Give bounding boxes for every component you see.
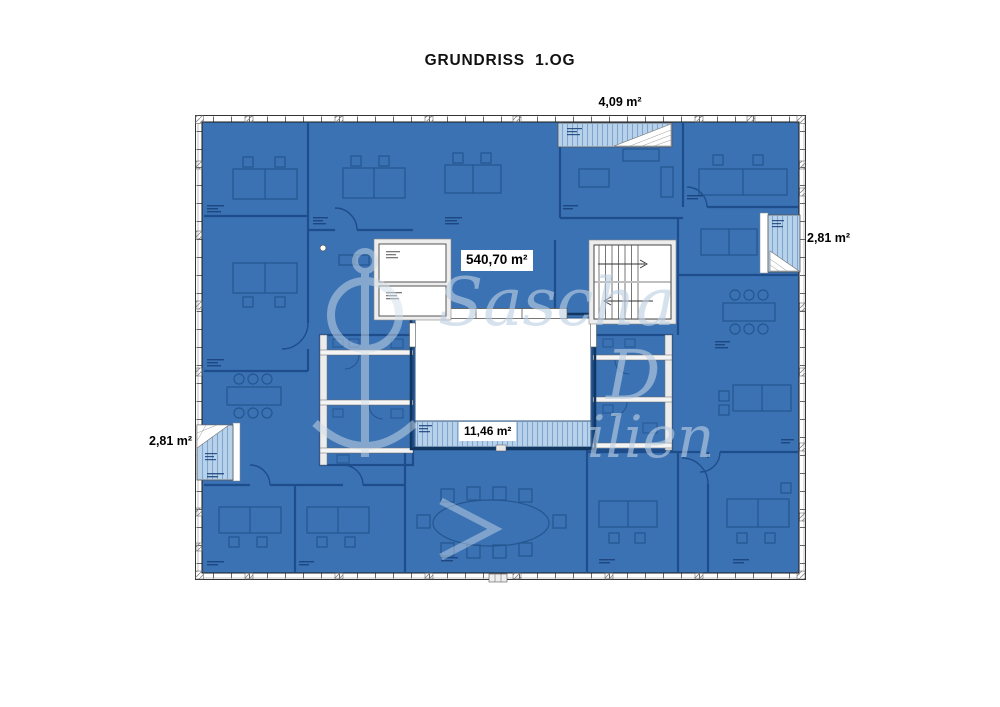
loggia-left xyxy=(197,423,240,481)
loggia-left-area-label: 2,81 m² xyxy=(149,434,192,448)
watermark-text-3: ilien xyxy=(587,403,714,471)
page-title: GRUNDRISS 1.OG xyxy=(0,52,1000,70)
floorplan-graphics: Sascha D ilien xyxy=(195,113,807,581)
loggia-top xyxy=(558,123,672,147)
main-area-label: 540,70 m² xyxy=(461,250,533,271)
loggia-top-area-label: 4,09 m² xyxy=(570,95,670,109)
floor-plan: Sascha D ilien 540,70 m² 11,46 m² 4,09 m… xyxy=(195,113,807,581)
page: GRUNDRISS 1.OG xyxy=(0,0,1000,707)
loggia-right xyxy=(760,213,800,273)
atrium-balcony-area-label: 11,46 m² xyxy=(459,422,516,441)
watermark-text-1: Sascha xyxy=(438,264,675,341)
loggia-right-area-label: 2,81 m² xyxy=(807,231,850,245)
